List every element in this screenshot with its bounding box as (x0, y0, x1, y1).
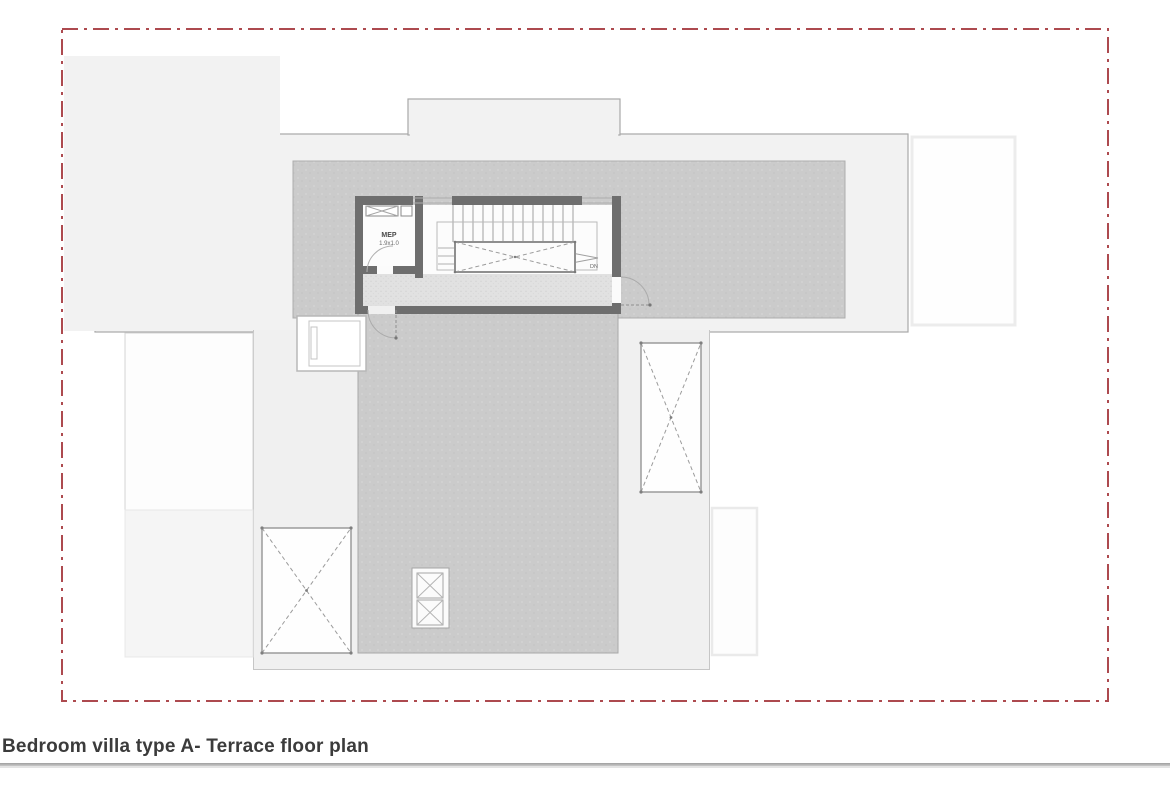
floor-plan-canvas: MEP 1.9x1.0 DN (0, 0, 1170, 785)
skylight-right (639, 341, 702, 493)
title-rule-shadow (0, 766, 1170, 768)
terrace-pocket-right (912, 137, 1015, 325)
roof-block-left (64, 56, 280, 331)
landing-floor (363, 274, 612, 306)
roof-tab-join (410, 131, 618, 137)
terrace-pocket-lower-right (712, 508, 757, 655)
stair-down-label: DN (590, 264, 598, 270)
mep-room-size: 1.9x1.0 (379, 241, 399, 247)
drawing-sheet: MEP 1.9x1.0 DN Bedroom villa type A- Ter… (0, 0, 1170, 785)
terrace-pocket-lower-left (125, 510, 253, 657)
stair-railing (454, 241, 577, 274)
mep-vents (366, 206, 412, 216)
door-opening-bottom (368, 306, 395, 314)
door-opening-right (612, 277, 621, 303)
skylight-left (260, 526, 352, 654)
sheet-title: Bedroom villa type A- Terrace floor plan (2, 736, 1002, 758)
terrace-pocket-left (125, 333, 253, 510)
main-terrace (358, 311, 618, 653)
vent-shaft (412, 568, 449, 628)
mep-room-label: MEP (381, 232, 397, 239)
planter-box (297, 316, 366, 371)
door-opening-mep (377, 266, 393, 274)
roof-tab-top (408, 99, 620, 135)
